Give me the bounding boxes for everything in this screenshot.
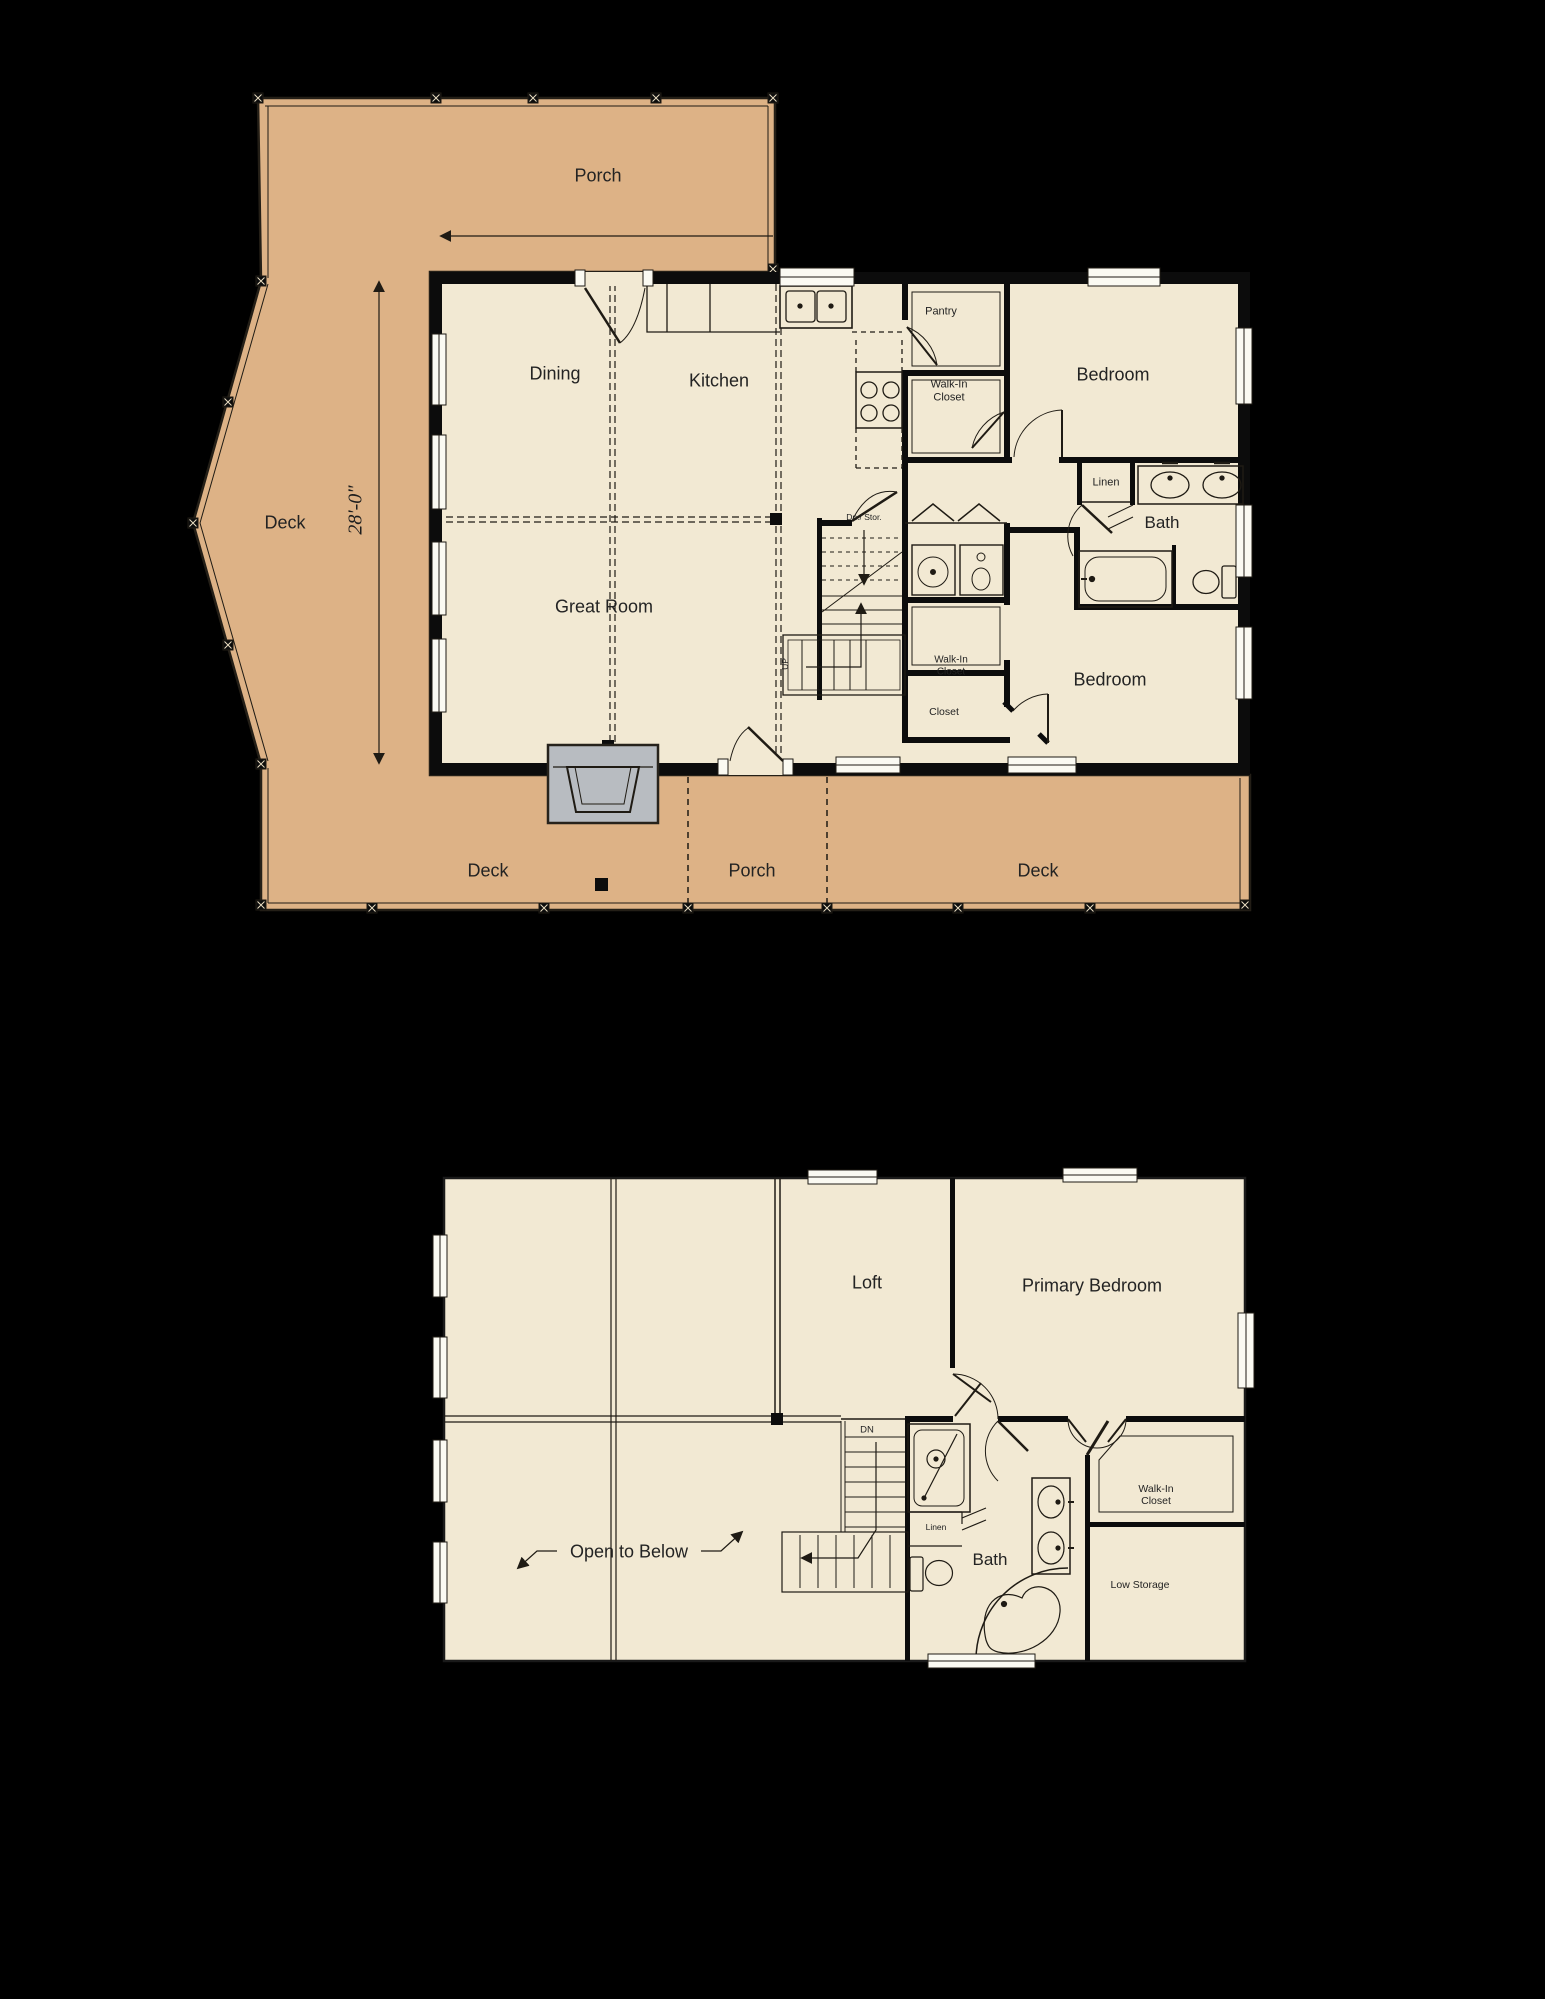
- label-porch-top: Porch: [574, 166, 621, 187]
- label-deck-bottom-left: Deck: [467, 861, 508, 882]
- label-walk-in-closet2: Walk-In Closet: [1124, 1483, 1188, 1507]
- label-bedroom-top: Bedroom: [1076, 365, 1149, 386]
- label-dining: Dining: [529, 364, 580, 385]
- label-dn-stor: Dn./ Stor.: [846, 513, 882, 523]
- floor-plan-canvas: Porch Deck Dining Kitchen Pantry Walk-In…: [0, 0, 1545, 1999]
- label-dimension-28ft: 28'-0": [345, 485, 368, 534]
- label-bedroom-bottom: Bedroom: [1073, 670, 1146, 691]
- label-linen2: Linen: [926, 1523, 947, 1533]
- label-kitchen: Kitchen: [689, 371, 749, 392]
- label-bath1: Bath: [1145, 513, 1180, 533]
- label-up: UP: [781, 658, 791, 670]
- label-dn2: DN: [860, 1426, 874, 1437]
- deck-support-post: [595, 878, 608, 891]
- fireplace-icon: [548, 745, 658, 823]
- label-pantry: Pantry: [925, 306, 957, 319]
- label-deck-bottom-right: Deck: [1017, 861, 1058, 882]
- label-great-room: Great Room: [555, 597, 653, 618]
- label-low-storage: Low Storage: [1111, 1579, 1170, 1591]
- label-walk-in-closet-bottom: Walk-In Closet: [922, 655, 980, 678]
- label-open-to-below: Open to Below: [570, 1542, 688, 1563]
- label-bath2: Bath: [973, 1550, 1008, 1570]
- floor2-plan: [433, 1168, 1254, 1668]
- label-linen1: Linen: [1093, 477, 1120, 490]
- label-loft: Loft: [852, 1273, 882, 1294]
- label-primary-bedroom: Primary Bedroom: [1022, 1276, 1162, 1297]
- kitchen-sink-icon: [780, 280, 852, 328]
- label-deck-left: Deck: [264, 513, 305, 534]
- floor-plans-svg: [0, 0, 1545, 1999]
- label-porch-bottom: Porch: [728, 861, 775, 882]
- label-walk-in-closet-top: Walk-In Closet: [918, 378, 980, 403]
- label-closet: Closet: [929, 706, 959, 718]
